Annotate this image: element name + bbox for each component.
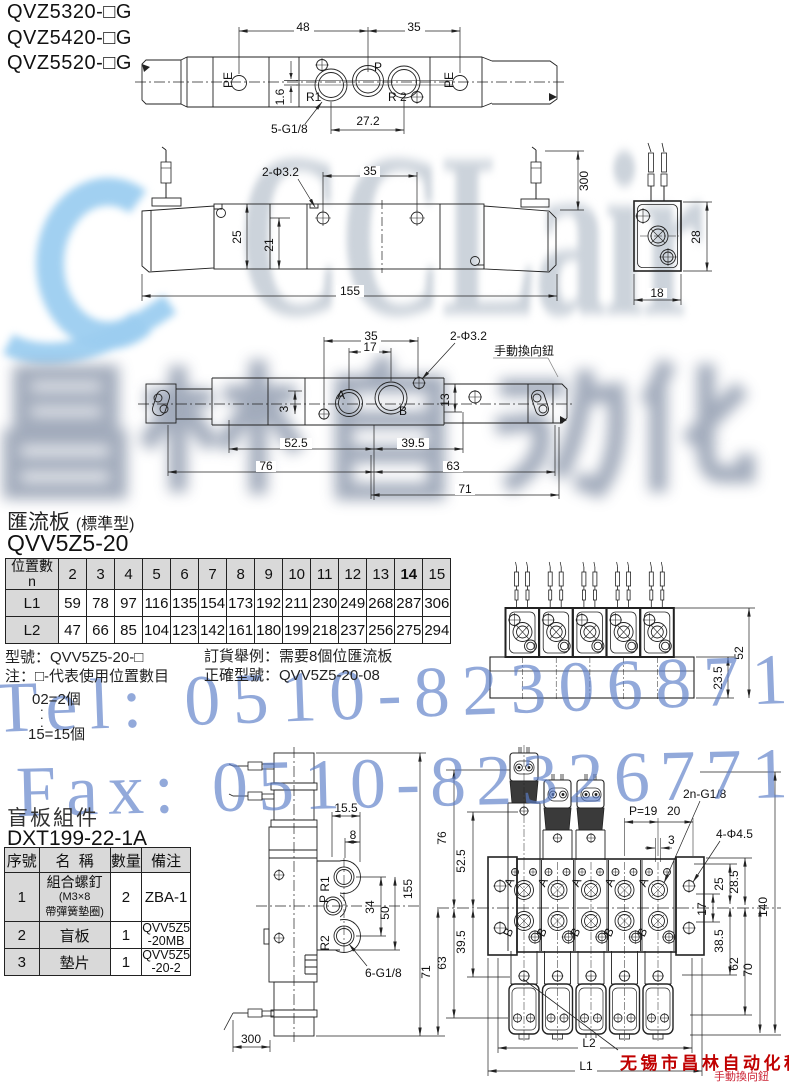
svg-text:76: 76 <box>435 831 449 845</box>
svg-text:63: 63 <box>446 459 460 473</box>
svg-text:1.6: 1.6 <box>273 88 287 105</box>
svg-text:25: 25 <box>230 230 244 244</box>
svg-text:39.5: 39.5 <box>454 930 468 954</box>
svg-text:手動換向鈕: 手動換向鈕 <box>494 343 554 358</box>
svg-text:50: 50 <box>378 906 392 920</box>
svg-text:R1: R1 <box>306 90 322 104</box>
svg-text:L1: L1 <box>579 1059 593 1073</box>
svg-text:155: 155 <box>340 284 360 298</box>
svg-text:4-Φ4.5: 4-Φ4.5 <box>716 827 753 841</box>
svg-text:6-G1/8: 6-G1/8 <box>365 966 402 980</box>
svg-text:70: 70 <box>741 963 755 977</box>
svg-text:63: 63 <box>435 956 449 970</box>
svg-text:300: 300 <box>241 1032 261 1046</box>
svg-text:300: 300 <box>577 171 591 191</box>
svg-text:17: 17 <box>695 902 709 916</box>
svg-text:3: 3 <box>668 833 675 847</box>
svg-text:21: 21 <box>262 238 276 252</box>
svg-text:76: 76 <box>259 459 273 473</box>
svg-text:71: 71 <box>419 965 433 979</box>
svg-text:3: 3 <box>277 405 291 412</box>
svg-text:25: 25 <box>712 877 726 891</box>
svg-text:155: 155 <box>401 879 415 899</box>
svg-text:R1: R1 <box>318 876 332 892</box>
svg-text:35: 35 <box>407 20 421 34</box>
svg-text:18: 18 <box>650 286 664 300</box>
svg-text:17: 17 <box>363 340 377 354</box>
svg-text:38.5: 38.5 <box>712 929 726 953</box>
svg-text:39.5: 39.5 <box>401 436 425 450</box>
svg-text:2-Φ3.2: 2-Φ3.2 <box>262 165 299 179</box>
svg-text:62: 62 <box>727 957 741 971</box>
svg-text:5-G1/8: 5-G1/8 <box>271 122 308 136</box>
svg-text:2-Φ3.2: 2-Φ3.2 <box>450 329 487 343</box>
svg-text:35: 35 <box>363 164 377 178</box>
svg-text:27.2: 27.2 <box>356 114 380 128</box>
svg-text:A: A <box>337 388 345 402</box>
svg-text:52.5: 52.5 <box>284 436 308 450</box>
svg-text:P: P <box>317 895 331 903</box>
svg-text:13: 13 <box>438 393 452 407</box>
svg-text:P: P <box>374 60 382 74</box>
svg-text:8: 8 <box>350 828 357 842</box>
svg-text:48: 48 <box>296 20 310 34</box>
svg-text:B: B <box>399 404 407 418</box>
svg-text:71: 71 <box>458 482 472 496</box>
svg-text:R2: R2 <box>318 935 332 951</box>
svg-text:PE: PE <box>221 72 235 88</box>
svg-text:28.5: 28.5 <box>727 870 741 894</box>
svg-text:28: 28 <box>689 230 703 244</box>
svg-text:PE: PE <box>442 72 456 88</box>
svg-text:52.5: 52.5 <box>454 849 468 873</box>
svg-text:L2: L2 <box>582 1036 596 1050</box>
svg-text:34: 34 <box>363 900 377 914</box>
svg-text:140: 140 <box>756 897 770 917</box>
